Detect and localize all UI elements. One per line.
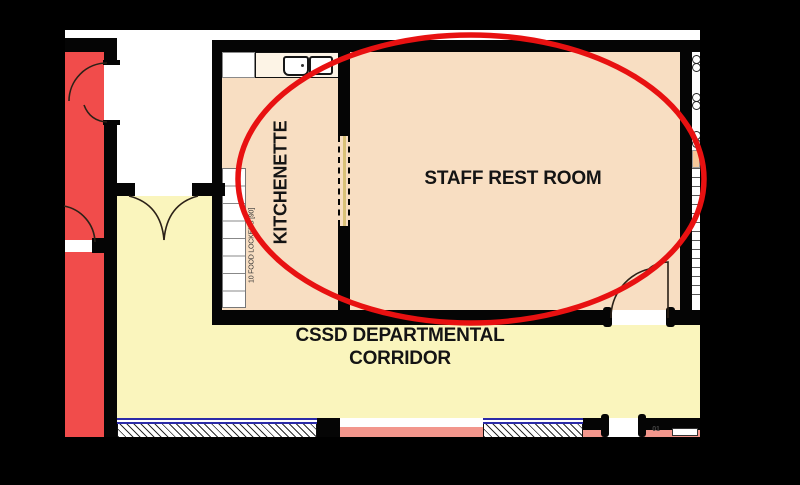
door-swing-arcs: [64, 63, 668, 318]
highlight-ellipse: [238, 35, 704, 323]
floor-plan-canvas: KITCHENETTE 10 FOOD LOCKERS [90] STAFF R…: [0, 0, 800, 485]
plan-overlay-svg: [0, 0, 800, 485]
